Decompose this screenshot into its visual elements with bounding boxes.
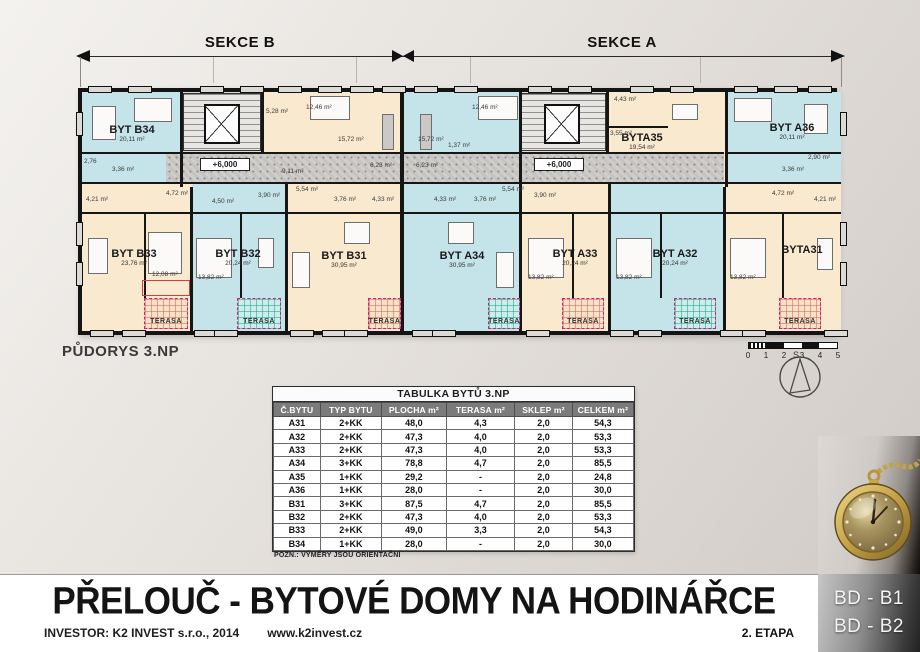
table-cell: 47,3 <box>381 443 446 456</box>
table-cell: - <box>446 470 514 483</box>
table-row: A322+KK47,34,02,053,3 <box>274 430 634 443</box>
investor-text: INVESTOR: K2 INVEST s.r.o., 2014 <box>44 626 239 640</box>
wall-segment <box>261 92 264 154</box>
table-cell: 2,0 <box>515 457 573 470</box>
table-cell: 24,8 <box>572 470 633 483</box>
table-cell: B33 <box>274 524 321 537</box>
window-segment <box>774 86 798 93</box>
room-area: 4,21 m² <box>814 196 836 203</box>
pocket-watch-photo <box>818 436 920 574</box>
room-area: 6,23 m² <box>416 162 438 169</box>
table-cell: 28,0 <box>381 537 446 550</box>
section-label-b: SEKCE B <box>78 34 402 52</box>
level-badge: +6,000 <box>534 158 584 171</box>
window-segment <box>240 86 264 93</box>
table-cell: 2+KK <box>320 524 381 537</box>
room-area: 13,82 m² <box>730 274 756 281</box>
window-segment <box>200 86 224 93</box>
wall-segment <box>82 212 841 214</box>
terrace-a32: TERASA <box>674 298 716 329</box>
table-cell: 47,3 <box>381 510 446 523</box>
wall-segment <box>723 187 726 331</box>
window-segment <box>122 330 146 337</box>
room-area: 13,82 m² <box>616 274 642 281</box>
room-area: 4,50 m² <box>212 198 234 205</box>
level-badge: +6,000 <box>200 158 250 171</box>
dimension-drop-line <box>841 57 842 87</box>
apartment-label-b33: BYT B3323,76 m² <box>84 248 184 267</box>
room-area: 12,46 m² <box>306 104 332 111</box>
table-row: A312+KK48,04,32,054,3 <box>274 417 634 430</box>
window-segment <box>350 86 374 93</box>
terrace-a31: TERASA <box>779 298 821 329</box>
table-cell: B31 <box>274 497 321 510</box>
room-area: 4,43 m² <box>614 96 636 103</box>
furniture <box>344 222 370 244</box>
table-cell: B32 <box>274 510 321 523</box>
dimension-tick <box>470 57 471 83</box>
apartment-label-a32: BYT A3220,24 m² <box>630 248 720 267</box>
table-cell: 1+KK <box>320 537 381 550</box>
table-cell: 4,0 <box>446 510 514 523</box>
table-cell: 49,0 <box>381 524 446 537</box>
apartment-table: Č.BYTUTYP BYTUPLOCHA m²TERASA m²SKLEP m²… <box>273 402 634 551</box>
table-note: POZN.: VÝMĚRY JSOU ORIENTAČNÍ <box>274 552 401 559</box>
wall-segment <box>82 182 841 184</box>
table-cell: 3,3 <box>446 524 514 537</box>
window-segment <box>670 86 694 93</box>
apartment-label-a35: BYTA3519,54 m² <box>592 132 692 151</box>
presentation-board: SEKCE B SEKCE A +6,000 +6,00 <box>0 0 920 652</box>
table-cell: 2+KK <box>320 510 381 523</box>
window-segment <box>76 112 83 136</box>
window-segment <box>720 330 744 337</box>
table-row: B332+KK49,03,32,054,3 <box>274 524 634 537</box>
table-cell: 54,3 <box>572 417 633 430</box>
table-cell: 2,0 <box>515 470 573 483</box>
furniture <box>734 98 772 122</box>
table-cell: 2,0 <box>515 430 573 443</box>
furniture <box>448 222 474 244</box>
room-area: 5,54 m² <box>296 186 318 193</box>
table-cell: 78,8 <box>381 457 446 470</box>
table-cell: A34 <box>274 457 321 470</box>
room-area: 3,36 m² <box>782 166 804 173</box>
terrace-a33: TERASA <box>562 298 604 329</box>
dimension-tick <box>356 57 357 83</box>
table-row: A332+KK47,34,02,053,3 <box>274 443 634 456</box>
wall-segment <box>180 92 183 187</box>
column-header: SKLEP m² <box>515 403 573 417</box>
window-segment <box>568 86 592 93</box>
room-area: 4,72 m² <box>772 190 794 197</box>
apartment-label-a33: BYT A3320,24 m² <box>530 248 620 267</box>
window-segment <box>76 222 83 246</box>
scale-number: 5 <box>836 351 840 360</box>
table-cell: 87,5 <box>381 497 446 510</box>
section-divider-arrow-icon <box>392 50 403 62</box>
table-cell: 4,3 <box>446 417 514 430</box>
room-area: 4,21 m² <box>86 196 108 203</box>
column-header: Č.BYTU <box>274 403 321 417</box>
room-area: 12,08 m² <box>152 271 178 278</box>
table-cell: 2,0 <box>515 510 573 523</box>
apartment-label-b31: BYT B3130,95 m² <box>288 250 400 269</box>
svg-text:S: S <box>793 350 799 360</box>
table-cell: 2+KK <box>320 417 381 430</box>
window-segment <box>638 330 662 337</box>
project-title: PŘELOUČ - BYTOVÉ DOMY NA HODINÁŘCE <box>38 580 790 623</box>
room-area: 15,72 m² <box>338 136 364 143</box>
window-segment <box>734 86 758 93</box>
room-area: 12,46 m² <box>472 104 498 111</box>
room-area: 5,54 m² <box>502 186 524 193</box>
table-cell: 1+KK <box>320 470 381 483</box>
table-cell: 2,0 <box>515 483 573 496</box>
wall-segment <box>166 152 400 154</box>
scale-number: 1 <box>764 351 768 360</box>
window-segment <box>318 86 342 93</box>
terrace-b32: TERASA <box>237 298 281 329</box>
pocket-watch-icon <box>818 436 920 574</box>
stage-label: 2. ETAPA <box>742 626 794 640</box>
table-cell: 3+KK <box>320 497 381 510</box>
building-code: BD - B2 <box>834 616 904 638</box>
table-cell: 28,0 <box>381 483 446 496</box>
table-cell: 4,7 <box>446 457 514 470</box>
window-segment <box>290 330 314 337</box>
room-area: 13,82 m² <box>198 274 224 281</box>
section-divider-arrow-icon <box>403 50 414 62</box>
room-area: 3,76 m² <box>474 196 496 203</box>
window-segment <box>454 86 478 93</box>
window-segment <box>128 86 152 93</box>
furniture <box>134 98 172 122</box>
room-area: 4,33 m² <box>372 196 394 203</box>
table-cell: 85,5 <box>572 497 633 510</box>
dimension-arrow-left-icon <box>76 50 90 62</box>
apartment-label-b32: BYT B3220,24 m² <box>190 248 286 267</box>
table-cell: 53,3 <box>572 443 633 456</box>
column-header: PLOCHA m² <box>381 403 446 417</box>
table-cell: A35 <box>274 470 321 483</box>
room-area: 3,76 m² <box>334 196 356 203</box>
table-row: B341+KK28,0-2,030,0 <box>274 537 634 550</box>
window-segment <box>742 330 766 337</box>
table-cell: 53,3 <box>572 430 633 443</box>
terrace-b33: TERASA <box>144 298 188 329</box>
room-area: 9,11 m² <box>282 168 304 175</box>
room-area: 3,90 m² <box>258 192 280 199</box>
room-area: 3,90 m² <box>534 192 556 199</box>
table-cell: - <box>446 537 514 550</box>
scale-number: 0 <box>746 351 750 360</box>
dimension-tick <box>700 57 701 83</box>
table-cell: 2+KK <box>320 430 381 443</box>
table-row: B322+KK47,34,02,053,3 <box>274 510 634 523</box>
room-area: 6,23 m² <box>370 162 392 169</box>
table-cell: 29,2 <box>381 470 446 483</box>
table-cell: 53,3 <box>572 510 633 523</box>
table-row: A361+KK28,0-2,030,0 <box>274 483 634 496</box>
website-link[interactable]: www.k2invest.cz <box>267 626 362 640</box>
dimension-tick <box>213 57 214 83</box>
terrace-a34: TERASA <box>488 298 520 329</box>
terrace-b31: TERASA <box>368 298 401 329</box>
table-cell: 4,7 <box>446 497 514 510</box>
table-cell: A31 <box>274 417 321 430</box>
elevator-icon <box>204 104 240 144</box>
window-segment <box>630 86 654 93</box>
furniture <box>382 114 394 150</box>
window-segment <box>840 222 847 246</box>
apartment-label-a31: BYTA31 <box>752 244 852 256</box>
furniture <box>672 104 698 120</box>
window-segment <box>840 262 847 286</box>
column-header: TERASA m² <box>446 403 514 417</box>
table-title: TABULKA BYTŮ 3.NP <box>273 387 634 402</box>
column-header: CELKEM m² <box>572 403 633 417</box>
wall-segment <box>404 152 724 154</box>
table-cell: 1+KK <box>320 483 381 496</box>
column-header: TYP BYTU <box>320 403 381 417</box>
room-area: 13,82 m² <box>528 274 554 281</box>
window-segment <box>824 330 848 337</box>
room-area: 2,76 <box>84 158 97 165</box>
table-cell: 30,0 <box>572 483 633 496</box>
table-cell: - <box>446 483 514 496</box>
room-area: 4,72 m² <box>166 190 188 197</box>
dimension-line <box>82 56 839 57</box>
furniture <box>420 114 432 150</box>
table-cell: 2,0 <box>515 497 573 510</box>
window-segment <box>322 330 346 337</box>
window-segment <box>278 86 302 93</box>
table-cell: 85,5 <box>572 457 633 470</box>
table-cell: 3+KK <box>320 457 381 470</box>
table-cell: A32 <box>274 430 321 443</box>
apartment-table-body: A312+KK48,04,32,054,3A322+KK47,34,02,053… <box>274 417 634 551</box>
table-cell: 2,0 <box>515 537 573 550</box>
window-segment <box>432 330 456 337</box>
apartment-label-b34: BYT B3420,11 m² <box>86 124 178 143</box>
dimension-arrow-right-icon <box>831 50 845 62</box>
window-segment <box>90 330 114 337</box>
table-cell: 2,0 <box>515 417 573 430</box>
table-cell: 4,0 <box>446 430 514 443</box>
apartment-label-a34: BYT A3430,95 m² <box>406 250 518 269</box>
window-segment <box>344 330 368 337</box>
section-label-a: SEKCE A <box>402 34 842 52</box>
floor-plan: +6,000 +6,000 TERASA TERASA TERASA TERAS… <box>78 88 837 335</box>
table-row: B313+KK87,54,72,085,5 <box>274 497 634 510</box>
window-segment <box>414 86 438 93</box>
table-row: A343+KK78,84,72,085,5 <box>274 457 634 470</box>
window-segment <box>610 330 634 337</box>
window-segment <box>526 330 550 337</box>
window-segment <box>88 86 112 93</box>
elevator-icon <box>544 104 580 144</box>
room-area: 15,72 m² <box>418 136 444 143</box>
window-segment <box>76 262 83 286</box>
building-code: BD - B1 <box>834 588 904 610</box>
wall-segment <box>725 92 728 187</box>
apartment-label-a36: BYT A3620,11 m² <box>742 122 842 141</box>
compass-north-icon: S <box>774 348 826 400</box>
plan-markup-rect <box>142 280 190 296</box>
table-cell: 2+KK <box>320 443 381 456</box>
plan-caption: PŮDORYS 3.NP <box>62 343 179 360</box>
table-cell: A33 <box>274 443 321 456</box>
room-area: 3,36 m² <box>112 166 134 173</box>
room-area: 4,33 m² <box>434 196 456 203</box>
room-area: 1,37 m² <box>448 142 470 149</box>
window-segment <box>808 86 832 93</box>
table-cell: 2,0 <box>515 524 573 537</box>
window-segment <box>214 330 238 337</box>
table-cell: 54,3 <box>572 524 633 537</box>
table-cell: B34 <box>274 537 321 550</box>
apartment-table-panel: TABULKA BYTŮ 3.NP Č.BYTUTYP BYTUPLOCHA m… <box>272 386 635 552</box>
table-cell: 4,0 <box>446 443 514 456</box>
dimension-drop-line <box>80 57 81 87</box>
table-cell: 30,0 <box>572 537 633 550</box>
table-row: A351+KK29,2-2,024,8 <box>274 470 634 483</box>
window-segment <box>528 86 552 93</box>
table-cell: 48,0 <box>381 417 446 430</box>
building-codes-panel: BD - B1 BD - B2 <box>818 574 920 652</box>
table-cell: 47,3 <box>381 430 446 443</box>
wall-segment <box>608 126 668 128</box>
footer: PŘELOUČ - BYTOVÉ DOMY NA HODINÁŘCE INVES… <box>0 574 818 652</box>
table-cell: 2,0 <box>515 443 573 456</box>
table-header-row: Č.BYTUTYP BYTUPLOCHA m²TERASA m²SKLEP m²… <box>274 403 634 417</box>
room-area: 3,55 m² <box>610 130 632 137</box>
table-cell: A36 <box>274 483 321 496</box>
room-area: 5,28 m² <box>266 108 288 115</box>
room-area: 2,90 m² <box>808 154 830 161</box>
window-segment <box>382 86 406 93</box>
